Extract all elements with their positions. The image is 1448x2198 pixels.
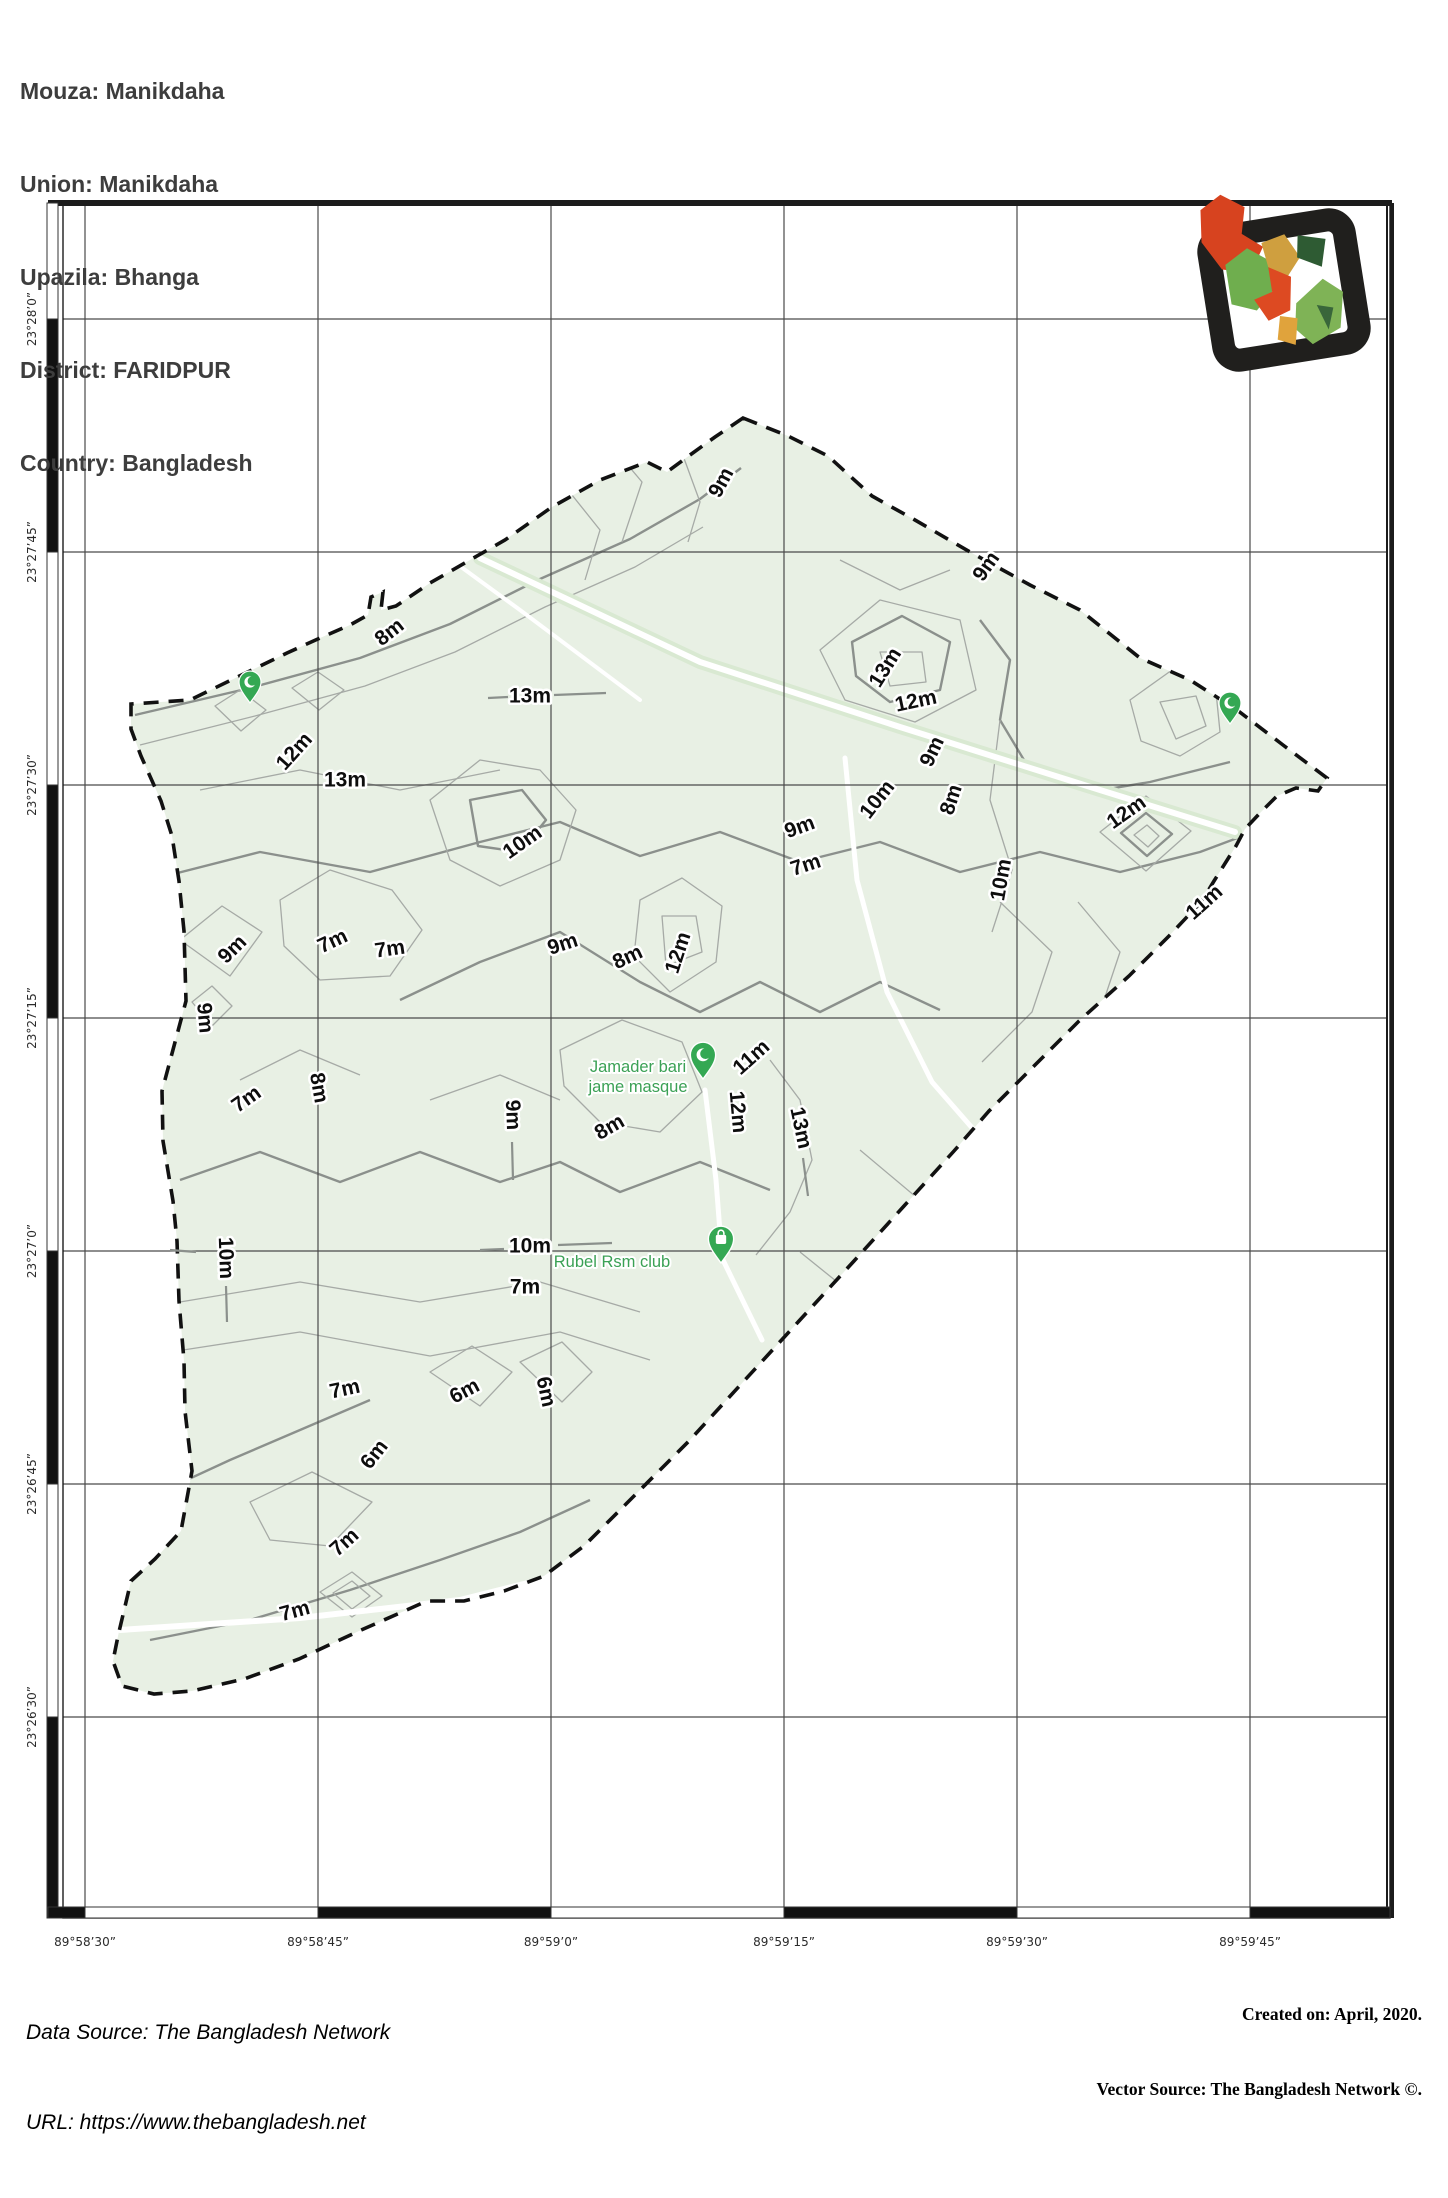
contour-leader-line <box>480 1249 504 1250</box>
footer-created-on: Created on: April, 2020. <box>1097 2002 1423 2027</box>
title-mouza: Mouza: Manikdaha <box>20 76 253 107</box>
footer-vector-source: Vector Source: The Bangladesh Network ©. <box>1097 2077 1423 2102</box>
poi-label: Jamader bari <box>590 1058 686 1076</box>
longitude-label: 89°59’0” <box>524 1935 578 1949</box>
latitude-label: 23°27’0” <box>25 1224 39 1278</box>
contour-elevation-label: 13m <box>509 685 551 708</box>
longitude-label: 89°59’45” <box>1219 1935 1281 1949</box>
longitude-label: 89°59’15” <box>753 1935 815 1949</box>
neatline-left-segment <box>47 1717 58 1918</box>
neatline-left-segment <box>47 1484 58 1717</box>
title-block: Mouza: Manikdaha Union: Manikdaha Upazil… <box>20 14 253 541</box>
contour-elevation-label: 10m <box>214 1237 238 1280</box>
longitude-label: 89°58’45” <box>287 1935 349 1949</box>
footer-data-source: Data Source: The Bangladesh Network <box>26 2018 390 2048</box>
contour-elevation-label: 7m <box>373 936 406 963</box>
contour-elevation-label: 12m <box>725 1090 752 1134</box>
neatline-left-segment <box>47 1251 58 1484</box>
latitude-label: 23°26’30” <box>25 1686 39 1748</box>
poi-label: Rubel Rsm club <box>554 1253 670 1271</box>
neatline-bottom-segment <box>1250 1907 1390 1918</box>
map-sheet: Mouza: Manikdaha Union: Manikdaha Upazil… <box>0 0 1448 2048</box>
contour-leader-line <box>512 1142 513 1180</box>
longitude-label: 89°59’30” <box>986 1935 1048 1949</box>
poi-label: jame masque <box>587 1078 687 1096</box>
neatline-bottom-segment <box>85 1907 318 1918</box>
neatline-left-segment <box>47 1018 58 1251</box>
contour-leader-line <box>488 697 508 698</box>
latitude-label: 23°26’45” <box>25 1453 39 1515</box>
neatline-bottom-segment <box>784 1907 1017 1918</box>
longitude-label: 89°58’30” <box>54 1935 116 1949</box>
neatline-bottom-segment <box>48 1907 85 1918</box>
latitude-label: 23°27’30” <box>25 754 39 816</box>
latitude-label: 23°27’15” <box>25 987 39 1049</box>
neatline-bottom-segment <box>1017 1907 1250 1918</box>
neatline-left-segment <box>47 785 58 1018</box>
contour-elevation-label: 13m <box>324 769 366 792</box>
title-upazila: Upazila: Bhanga <box>20 262 253 293</box>
neatline-bottom-segment <box>551 1907 784 1918</box>
title-country: Country: Bangladesh <box>20 448 253 479</box>
contour-elevation-label: 9m <box>501 1099 525 1130</box>
title-district: District: FARIDPUR <box>20 355 253 386</box>
neatline-bottom-segment <box>318 1907 551 1918</box>
footer-credit-block: Created on: April, 2020. Vector Source: … <box>1097 1952 1423 2152</box>
contour-leader-line <box>226 1286 227 1322</box>
footer-url: URL: https://www.thebangladesh.net <box>26 2108 390 2138</box>
contour-elevation-label: 7m <box>510 1276 540 1299</box>
footer-source-block: Data Source: The Bangladesh Network URL:… <box>26 1958 390 2198</box>
title-union: Union: Manikdaha <box>20 169 253 200</box>
neatline-left-segment <box>47 552 58 785</box>
contour-elevation-label: 10m <box>509 1235 551 1258</box>
mouza-area-fill <box>113 418 1327 1694</box>
contour-elevation-label: 9m <box>192 1002 218 1034</box>
